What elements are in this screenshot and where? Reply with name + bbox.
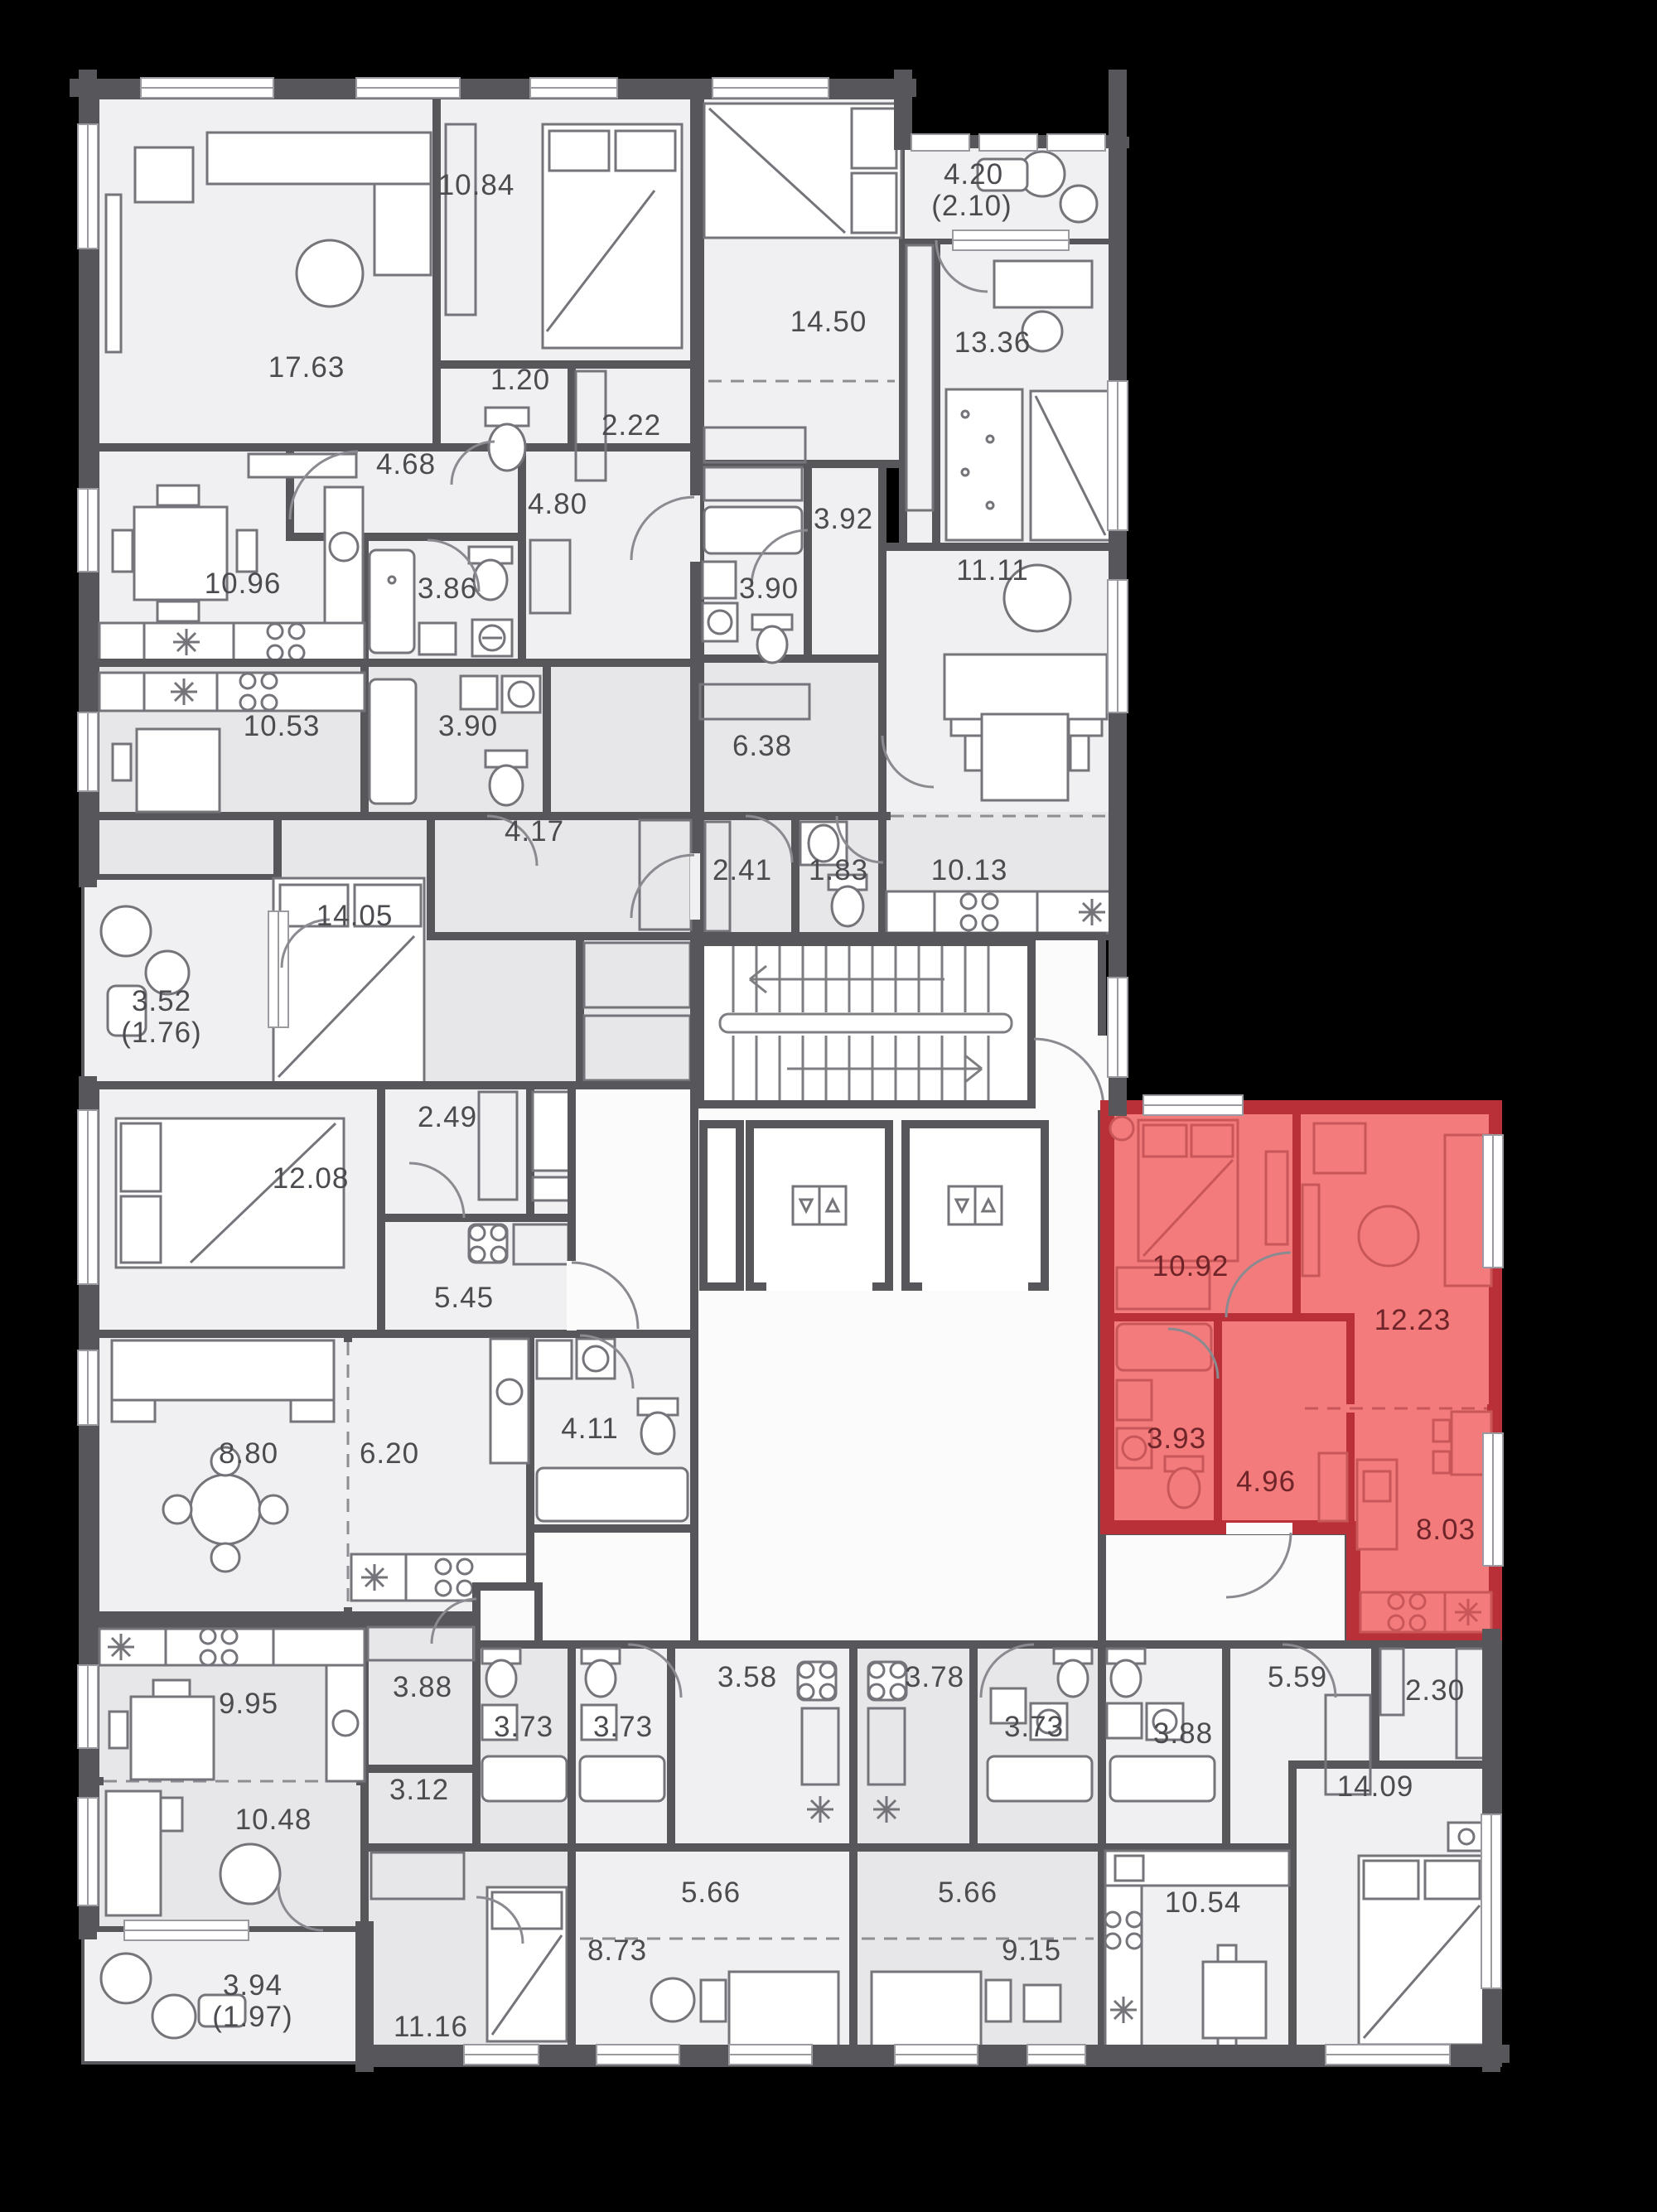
room-label-sc-kitchen: 3.78 xyxy=(905,1661,964,1693)
room-label-red-kitchen: 8.03 xyxy=(1416,1514,1476,1546)
room-label-b1-kitchen: 10.13 xyxy=(931,854,1008,886)
elevator-door-gap xyxy=(922,1282,1028,1291)
bathtub-icon xyxy=(580,1756,664,1801)
room-label-b1-living: 11.11 xyxy=(956,554,1028,587)
bathtub-icon xyxy=(1117,1324,1211,1370)
room-label-a1-wardrobe: 2.22 xyxy=(601,409,661,442)
room-label-a3-hall: 5.45 xyxy=(434,1282,494,1314)
room-label-b1-ward: 3.92 xyxy=(814,503,873,535)
room-label-red-living: 12.23 xyxy=(1374,1304,1452,1336)
side-table-icon xyxy=(1024,1985,1060,2021)
room-label-a3-wardrobe: 2.49 xyxy=(418,1101,477,1133)
sink-icon xyxy=(703,562,736,598)
toilet-icon xyxy=(582,1649,620,1697)
room-label-c1-ward: 3.88 xyxy=(393,1671,452,1703)
washer-icon xyxy=(472,620,512,656)
room-label-a3-living: 8.80 xyxy=(219,1437,278,1470)
room-label-a1-kitchen: 10.96 xyxy=(205,567,282,600)
room-label-red-hall: 4.96 xyxy=(1236,1466,1296,1498)
room-label-c1-balcony: 3.94 xyxy=(223,1969,283,2002)
washer-icon xyxy=(502,676,540,712)
round-table-icon xyxy=(1359,1206,1418,1266)
room-label-d-living: 10.54 xyxy=(1165,1886,1242,1919)
room-label-a1-living: 17.63 xyxy=(268,351,345,384)
corridor-southwest2 xyxy=(476,1587,539,1645)
sink-icon xyxy=(1107,1703,1142,1738)
room-label-b1-child: 13.36 xyxy=(954,326,1031,359)
room-label-a3-bedroom: 12.08 xyxy=(273,1162,350,1195)
washer-icon xyxy=(703,603,737,641)
bathtub-icon xyxy=(370,679,416,804)
toilet-icon xyxy=(486,751,527,805)
bed-icon xyxy=(1359,1823,1485,2045)
tv-unit-icon xyxy=(106,195,121,352)
room-label-b1-hall: 6.38 xyxy=(732,730,792,762)
apartment-a1 xyxy=(95,95,694,663)
round-table-icon xyxy=(220,1844,280,1904)
toilet-icon xyxy=(1107,1649,1145,1697)
elevator-door-gap xyxy=(766,1282,872,1291)
cabinet-icon xyxy=(1266,1152,1287,1244)
room-label-c1-kitchen: 9.95 xyxy=(219,1688,278,1720)
stove-icon xyxy=(798,1662,836,1700)
room-label-sc-hall: 5.66 xyxy=(938,1876,998,1909)
room-label-sc-bath: 3.73 xyxy=(1004,1711,1064,1743)
room-label-sc-living: 9.15 xyxy=(1002,1934,1061,1967)
sink-icon xyxy=(461,676,497,709)
tv-unit-icon xyxy=(1302,1185,1319,1276)
room-label-a2-balcony-half: (1.76) xyxy=(121,1017,201,1049)
corridor-southeast xyxy=(1102,1531,1349,1645)
bed-icon xyxy=(704,104,901,238)
door-gap xyxy=(1226,1523,1292,1534)
room-label-b1-bedroom: 14.50 xyxy=(790,306,867,338)
studio-c xyxy=(853,1645,1102,2063)
bathtub-icon xyxy=(1110,1756,1215,1801)
room-label-d-hall: 5.59 xyxy=(1268,1661,1327,1693)
toilet-icon xyxy=(486,408,529,471)
room-label-a3-kitchen: 6.20 xyxy=(360,1437,419,1470)
room-label-red-bath: 3.93 xyxy=(1147,1422,1206,1455)
room-label-b1-balcony-half: (2.10) xyxy=(931,190,1012,222)
bathtub-icon xyxy=(704,507,802,553)
apartment-b1 xyxy=(700,95,1118,936)
room-label-b1-ward2: 2.41 xyxy=(713,854,772,886)
kitchen-counter-icon xyxy=(886,891,1115,933)
room-label-d-bedroom: 14.09 xyxy=(1337,1770,1414,1803)
bed-icon xyxy=(543,124,682,348)
toilet-icon xyxy=(1165,1456,1203,1508)
room-label-a2-bedroom: 14.05 xyxy=(316,900,394,932)
room-a2-ward-zone xyxy=(580,936,694,1085)
apartment-c1 xyxy=(83,1624,572,2063)
room-label-red-bedroom: 10.92 xyxy=(1152,1250,1229,1282)
room-label-sb-bath: 3.73 xyxy=(593,1711,653,1743)
room-label-a2-balcony: 3.52 xyxy=(132,985,191,1017)
toilet-icon xyxy=(1054,1649,1092,1697)
room-label-a2-hall: 4.17 xyxy=(505,815,564,848)
kitchen-counter-icon xyxy=(99,673,365,711)
toilet-icon xyxy=(482,1649,520,1697)
room-label-c1-hall: 3.12 xyxy=(389,1774,449,1806)
room-label-a1-wc: 1.20 xyxy=(490,364,550,396)
room-label-b1-bath: 3.90 xyxy=(739,572,799,605)
room-label-b1-wc: 1.83 xyxy=(809,854,868,886)
room-label-b1-balcony: 4.20 xyxy=(944,158,1003,191)
floor-plan-page: 17.63 10.84 1.20 2.22 4.68 10.96 3.86 4.… xyxy=(0,0,1657,2212)
corridor-southwest xyxy=(530,1529,694,1645)
room-label-c1-bedroom: 11.16 xyxy=(394,2011,468,2043)
bathtub-icon xyxy=(988,1756,1092,1801)
room-b1-ward xyxy=(808,464,882,681)
bathtub-icon xyxy=(537,1468,688,1521)
room-b1-wardcol xyxy=(903,240,936,547)
room-label-d-ward: 2.30 xyxy=(1405,1674,1465,1707)
room-label-c1-bath: 3.73 xyxy=(494,1711,553,1743)
room-label-c1-living: 10.48 xyxy=(235,1804,312,1836)
room-label-a1-hall: 4.68 xyxy=(376,448,436,481)
stove-icon xyxy=(469,1224,507,1263)
room-label-sb-living: 8.73 xyxy=(587,1934,647,1967)
shelf-icon xyxy=(249,454,356,477)
room-label-a3-bath: 4.11 xyxy=(561,1413,619,1445)
floor-plan: 17.63 10.84 1.20 2.22 4.68 10.96 3.86 4.… xyxy=(0,0,1657,2212)
room-label-a1-hall2: 4.80 xyxy=(528,488,587,520)
dining-table-icon xyxy=(1203,1945,1266,2048)
sink-icon xyxy=(419,623,456,654)
room-label-a1-bath: 3.86 xyxy=(418,572,477,605)
room-label-sb-hall: 5.66 xyxy=(681,1876,741,1909)
closet xyxy=(533,1177,569,1200)
stove-icon xyxy=(868,1662,906,1700)
room-label-c1-balcony-half: (1.97) xyxy=(212,2001,292,2033)
elevators xyxy=(703,1124,1045,1291)
shaft-duct xyxy=(703,1124,740,1287)
bathtub-icon xyxy=(370,550,414,653)
room-a2-niche xyxy=(95,816,278,878)
corridor-west xyxy=(572,1085,694,1334)
room-label-a2-bath: 3.90 xyxy=(438,710,498,742)
side-table-icon xyxy=(651,1978,694,2021)
bed-icon xyxy=(487,1887,567,2041)
staircase xyxy=(700,942,1031,1104)
room-label-sb-kitchen: 3.58 xyxy=(717,1661,777,1693)
sink-icon xyxy=(1117,1380,1152,1420)
coffee-table-icon xyxy=(297,240,363,307)
sink-icon xyxy=(537,1340,572,1379)
room-label-a1-bedroom: 10.84 xyxy=(438,169,515,201)
room-a1-hall2 xyxy=(522,447,694,663)
studio-b xyxy=(572,1645,853,2063)
room-a2-hall-upper xyxy=(547,663,694,816)
apartment-d xyxy=(1102,1645,1498,2063)
room-label-d-bath: 3.88 xyxy=(1153,1717,1213,1750)
toilet-icon xyxy=(638,1398,678,1454)
room-label-a2-kitchen: 10.53 xyxy=(244,710,321,742)
closet xyxy=(533,1092,569,1171)
bathtub-icon xyxy=(482,1756,567,1801)
